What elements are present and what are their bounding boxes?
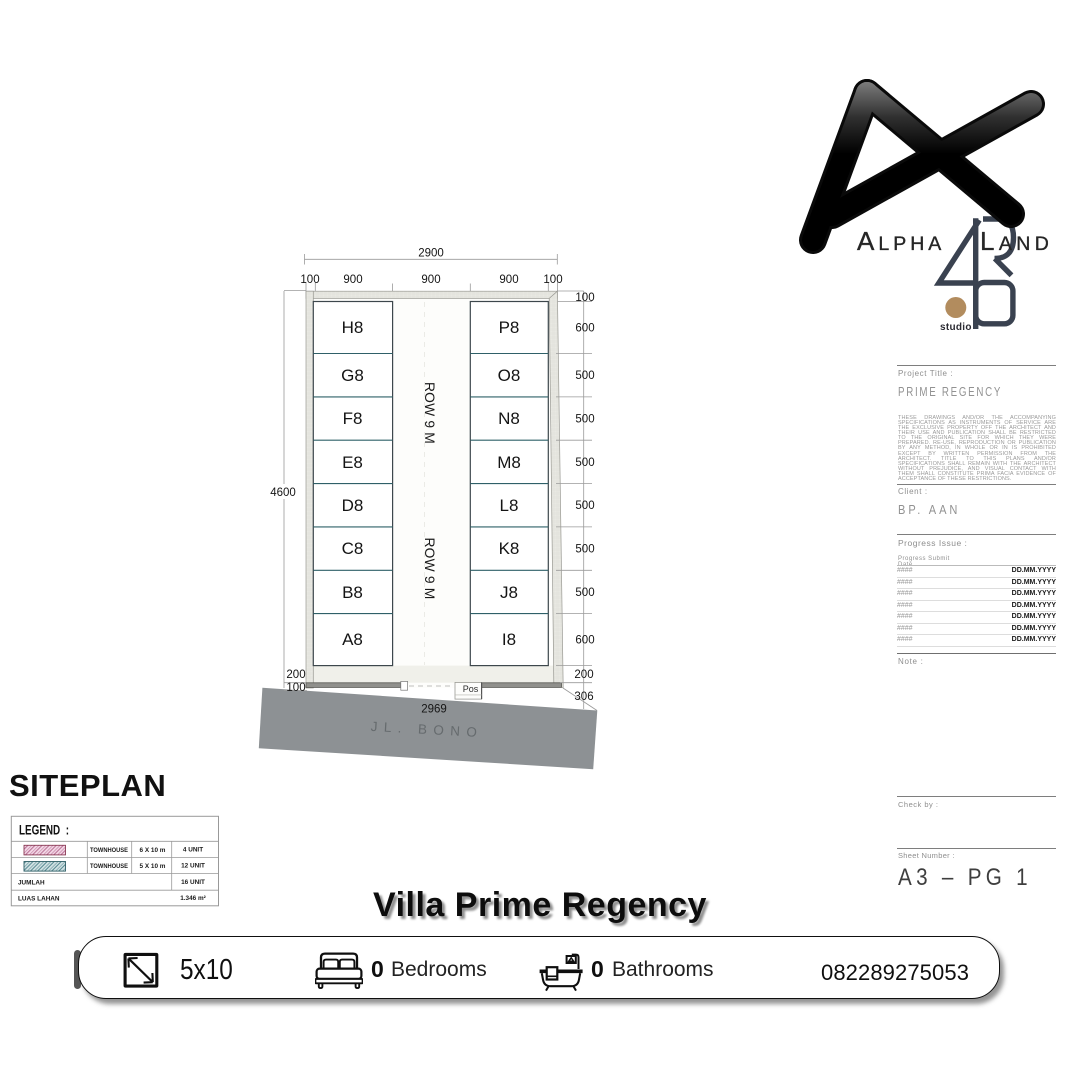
svg-text:6 X 10 m: 6 X 10 m xyxy=(140,847,166,854)
svg-text:5 X 10 m: 5 X 10 m xyxy=(140,863,166,870)
svg-text:16 UNIT: 16 UNIT xyxy=(181,879,205,886)
svg-text:TOWNHOUSE: TOWNHOUSE xyxy=(90,847,129,854)
svg-text:LEGEND :: LEGEND : xyxy=(19,823,69,838)
svg-text:TOWNHOUSE: TOWNHOUSE xyxy=(90,863,129,870)
svg-text:12 UNIT: 12 UNIT xyxy=(181,863,205,870)
svg-text:4 UNIT: 4 UNIT xyxy=(183,846,203,853)
